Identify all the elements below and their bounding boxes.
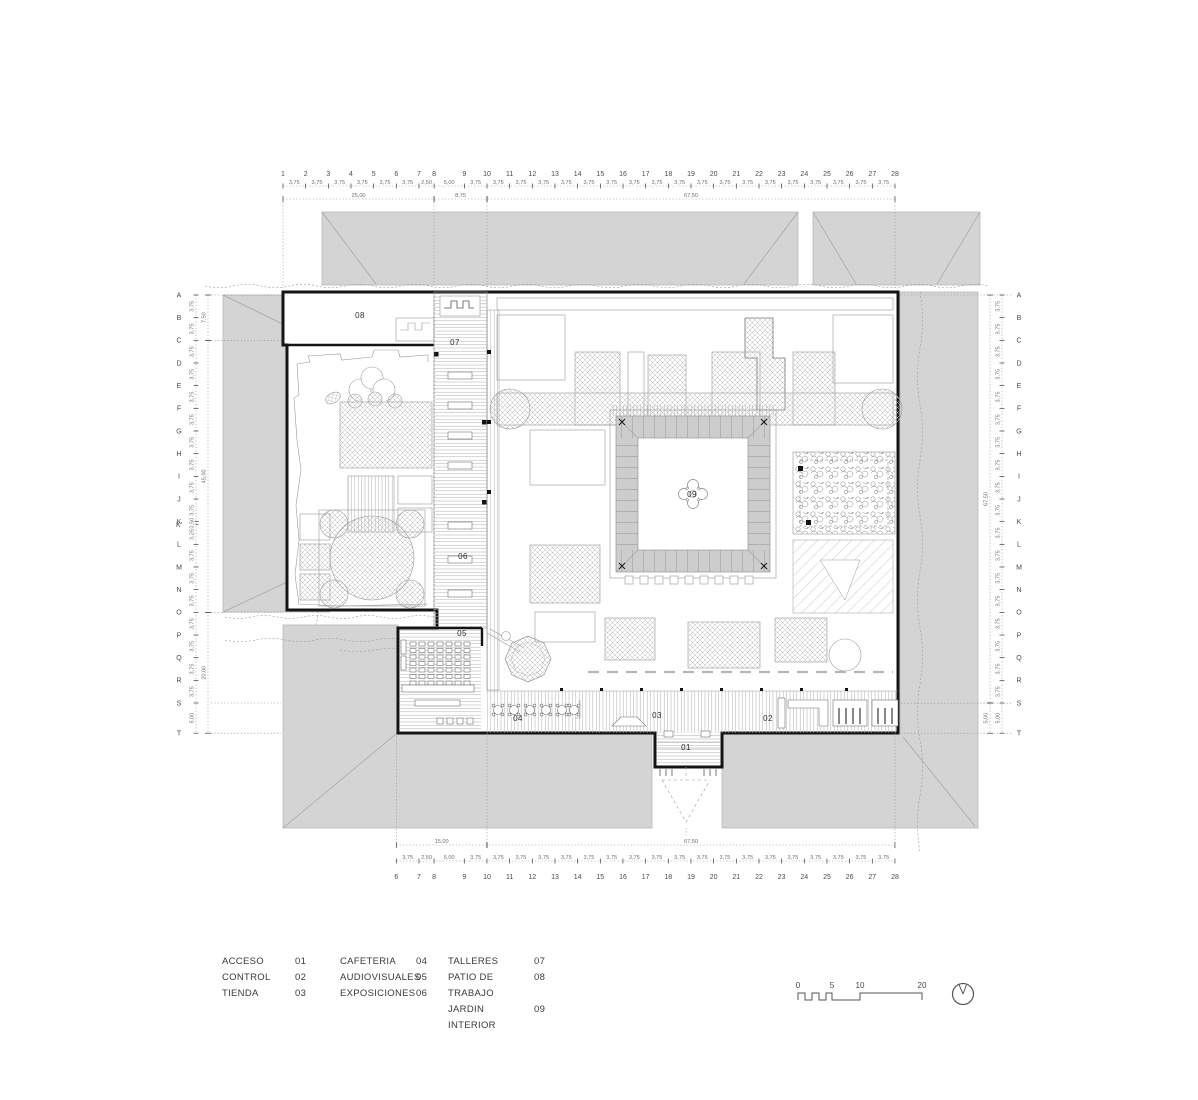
grid-letter: L <box>1017 542 1021 549</box>
grid-number: 18 <box>664 171 672 178</box>
dimension-value: 3,75 <box>629 855 640 861</box>
grid-number: 15 <box>596 874 604 881</box>
room-label-06: 06 <box>458 552 468 561</box>
legend-entry: EXPOSICIONES06 <box>340 986 427 1002</box>
grid-number: 16 <box>619 874 627 881</box>
dimension-value: 3,75 <box>190 664 196 675</box>
legend-label: CAFETERIA <box>340 954 416 970</box>
dimension-value: 0,50 <box>190 518 196 529</box>
grid-number: 24 <box>800 874 808 881</box>
dimension-value: 2,50 <box>421 855 432 861</box>
seat <box>428 649 434 653</box>
seat <box>437 642 443 646</box>
seat <box>446 662 452 666</box>
seat <box>455 668 461 672</box>
dimension-value: 3,75 <box>856 855 867 861</box>
seat <box>464 649 470 653</box>
grid-number: 13 <box>551 171 559 178</box>
seat <box>410 675 416 679</box>
dimension-value: 7,50 <box>202 312 208 323</box>
grid-letter: D <box>176 360 181 367</box>
dimension-value: 3,75 <box>674 855 685 861</box>
dimension-value: 3,75 <box>674 180 685 186</box>
dimension-value: 20,00 <box>202 666 208 680</box>
seat <box>428 668 434 672</box>
grid-letter: J <box>1017 496 1021 503</box>
seat <box>446 649 452 653</box>
dimension-value: 3,75 <box>652 180 663 186</box>
grid-number: 11 <box>506 171 513 178</box>
seat <box>464 675 470 679</box>
room-label-05: 05 <box>457 629 467 638</box>
grid-letter: K' <box>176 522 182 529</box>
dimension-value: 3,75 <box>996 414 1002 425</box>
seat <box>446 642 452 646</box>
legend-entry: CONTROL02 <box>222 970 306 986</box>
grid-number: 22 <box>755 171 763 178</box>
dimension-value: 5,00 <box>190 713 196 724</box>
grid-number: 8 <box>432 874 436 881</box>
grid-letter: T <box>1017 731 1022 738</box>
dimension-value: 3,75 <box>190 505 196 516</box>
seat <box>464 662 470 666</box>
dimension-value: 3,75 <box>996 596 1002 607</box>
dimension-value: 3,75 <box>538 180 549 186</box>
grid-number: 10 <box>483 171 491 178</box>
dimension-value: 3,75 <box>788 855 799 861</box>
grid-number: 14 <box>574 874 582 881</box>
seat <box>419 675 425 679</box>
seat <box>419 642 425 646</box>
legend-entry: AUDIOVISUALES05 <box>340 970 427 986</box>
grid-letter: L <box>177 542 181 549</box>
dimension-value: 3,75 <box>629 180 640 186</box>
dimension-value: 3,75 <box>402 180 413 186</box>
seat <box>446 668 452 672</box>
legend-number: 08 <box>534 970 545 1002</box>
dimension-value: 3,75 <box>788 180 799 186</box>
seat <box>410 655 416 659</box>
bottom-corridor <box>487 688 898 733</box>
grid-number: 19 <box>687 171 695 178</box>
legend-column-3: TALLERES07PATIO DE TRABAJO08JARDIN INTER… <box>448 954 545 1034</box>
grid-number: 8 <box>432 171 436 178</box>
grid-number: 9 <box>462 171 466 178</box>
legend-entry: TALLERES07 <box>448 954 545 970</box>
grid-number: 13 <box>551 874 559 881</box>
legend-entry: CAFETERIA04 <box>340 954 427 970</box>
dimension-value: 5,00 <box>984 713 990 724</box>
dimension-value: 8,75 <box>455 193 466 199</box>
grid-letter: K <box>1017 519 1022 526</box>
legend: ACCESO01CONTROL02TIENDA03CAFETERIA04AUDI… <box>0 954 1198 1014</box>
dimension-value: 3,75 <box>190 346 196 357</box>
dimension-value: 3,75 <box>833 855 844 861</box>
grid-number: 23 <box>778 171 786 178</box>
room-label-01: 01 <box>681 743 691 752</box>
grid-number: 24 <box>800 171 808 178</box>
dimension-value: 3,75 <box>190 686 196 697</box>
dimension-value: 3,75 <box>996 437 1002 448</box>
dimension-value: 5,00 <box>444 855 455 861</box>
legend-number: 01 <box>295 954 306 970</box>
grid-number: 11 <box>506 874 513 881</box>
grid-number: 5 <box>372 171 376 178</box>
legend-entry: ACCESO01 <box>222 954 306 970</box>
seat <box>437 662 443 666</box>
dimension-value: 3,75 <box>190 392 196 403</box>
dimension-value: 3,75 <box>996 324 1002 335</box>
seat <box>428 675 434 679</box>
dimension-value: 3,75 <box>190 414 196 425</box>
dimension-value: 3,75 <box>765 180 776 186</box>
seat <box>410 662 416 666</box>
grid-letter: B <box>1017 315 1022 322</box>
seat <box>410 642 416 646</box>
dimension-value: 3,75 <box>357 180 368 186</box>
room-label-08: 08 <box>355 311 365 320</box>
dimension-value: 67,50 <box>684 193 698 199</box>
dimension-value: 3,75 <box>190 641 196 652</box>
seat <box>446 655 452 659</box>
seat <box>437 655 443 659</box>
legend-label: EXPOSICIONES <box>340 986 416 1002</box>
seat <box>446 675 452 679</box>
grid-letter: R <box>1016 678 1021 685</box>
grid-number: 22 <box>755 874 763 881</box>
right-garden <box>793 452 895 613</box>
grid-ruler-bottom: 6789101112131415161718192021222324252627… <box>394 839 899 881</box>
room-label-09: 09 <box>687 490 697 499</box>
legend-number: 04 <box>416 954 427 970</box>
grid-ruler-right: ABCDEFGHIJKLMNOPQRST3,753,753,753,753,75… <box>984 292 1023 737</box>
grid-letter: S <box>177 700 182 707</box>
grid-number: 18 <box>664 874 672 881</box>
grid-ruler-left: ABCDEFGHIJKK'LMNOPQRST3,753,753,753,753,… <box>176 292 211 737</box>
seat <box>464 668 470 672</box>
seat <box>428 681 434 685</box>
legend-number: 03 <box>295 986 306 1002</box>
legend-label: AUDIOVISUALES <box>340 970 416 986</box>
room-label-03: 03 <box>652 711 662 720</box>
seat <box>455 655 461 659</box>
dimension-value: 3,75 <box>190 369 196 380</box>
dimension-value: 3,75 <box>493 180 504 186</box>
cafe-table <box>568 704 580 716</box>
dimension-value: 3,75 <box>190 301 196 312</box>
dimension-value: 3,75 <box>561 855 572 861</box>
dimension-value: 3,75 <box>493 855 504 861</box>
grid-number: 20 <box>710 171 718 178</box>
grid-number: 16 <box>619 171 627 178</box>
seat <box>419 655 425 659</box>
seat <box>455 662 461 666</box>
grid-letter: F <box>177 406 181 413</box>
dimension-value: 3,75 <box>561 180 572 186</box>
grid-number: 4 <box>349 171 353 178</box>
grid-number: 6 <box>394 874 398 881</box>
dimension-value: 5,00 <box>996 713 1002 724</box>
seat <box>455 681 461 685</box>
dimension-value: 3,75 <box>996 618 1002 629</box>
grid-letter: O <box>176 610 182 617</box>
dimension-value: 3,75 <box>190 482 196 493</box>
dimension-value: 15,00 <box>435 839 449 845</box>
legend-label: ACCESO <box>222 954 295 970</box>
grid-letter: P <box>177 632 182 639</box>
dimension-value: 3,75 <box>996 528 1002 539</box>
dimension-value: 3,75 <box>190 596 196 607</box>
grid-letter: B <box>177 315 182 322</box>
grid-number: 27 <box>868 171 876 178</box>
octagon-tower <box>505 636 551 682</box>
grid-number: 19 <box>687 874 695 881</box>
dimension-value: 3,75 <box>584 180 595 186</box>
dimension-value: 3,75 <box>765 855 776 861</box>
grid-letter: F <box>1017 406 1021 413</box>
dimension-value: 3,75 <box>996 573 1002 584</box>
cafe-table <box>524 704 536 716</box>
legend-number: 09 <box>534 1002 545 1034</box>
grid-number: 7 <box>417 171 421 178</box>
legend-number: 02 <box>295 970 306 986</box>
dimension-value: 3,75 <box>584 855 595 861</box>
cafe-table <box>540 704 552 716</box>
seat <box>455 649 461 653</box>
grid-number: 26 <box>846 874 854 881</box>
dimension-value: 3,75 <box>878 180 889 186</box>
dimension-value: 3,75 <box>470 180 481 186</box>
legend-label: TALLERES <box>448 954 534 970</box>
seat <box>419 649 425 653</box>
grid-letter: M <box>176 564 182 571</box>
legend-entry: TIENDA03 <box>222 986 306 1002</box>
dimension-value: 3,75 <box>516 180 527 186</box>
grid-letter: D <box>1016 360 1021 367</box>
dimension-value: 3,75 <box>742 855 753 861</box>
floor-plan-drawing: 1234567891011121314151617181920212223242… <box>0 0 1198 1100</box>
grid-letter: T <box>177 731 182 738</box>
grid-number: 14 <box>574 171 582 178</box>
grid-letter: H <box>176 451 181 458</box>
dimension-value: 3,75 <box>190 550 196 561</box>
grid-letter: J <box>177 496 181 503</box>
seat <box>437 675 443 679</box>
dimension-value: 3,75 <box>312 180 323 186</box>
grid-number: 25 <box>823 874 831 881</box>
dimension-value: 25,00 <box>352 193 366 199</box>
seat <box>410 681 416 685</box>
dimension-value: 3,75 <box>856 180 867 186</box>
grid-letter: I <box>178 474 180 481</box>
dimension-value: 3,75 <box>996 369 1002 380</box>
grid-number: 17 <box>642 874 650 881</box>
dimension-value: 3,75 <box>996 664 1002 675</box>
seat <box>464 655 470 659</box>
dimension-value: 3,75 <box>810 180 821 186</box>
dimension-value: 3,75 <box>606 180 617 186</box>
dimension-value: 3,75 <box>516 855 527 861</box>
grid-letter: G <box>176 428 181 435</box>
cafe-table <box>492 704 504 716</box>
grid-number: 12 <box>528 874 536 881</box>
seat <box>428 655 434 659</box>
dimension-value: 3,75 <box>996 392 1002 403</box>
grid-number: 7 <box>417 874 421 881</box>
dimension-value: 3,75 <box>720 180 731 186</box>
grid-letter: M <box>1016 564 1022 571</box>
dimension-value: 3,75 <box>470 855 481 861</box>
grid-letter: I <box>1018 474 1020 481</box>
courtyard-paving-squares <box>625 576 753 584</box>
room-label-07: 07 <box>450 338 460 347</box>
grid-number: 23 <box>778 874 786 881</box>
legend-number: 06 <box>416 986 427 1002</box>
dimension-value: 3,75 <box>996 346 1002 357</box>
dimension-value: 3,75 <box>334 180 345 186</box>
grid-letter: O <box>1016 610 1022 617</box>
seat <box>437 681 443 685</box>
seat <box>419 681 425 685</box>
room-label-04: 04 <box>513 714 523 723</box>
legend-label: JARDIN INTERIOR <box>448 1002 534 1034</box>
seat <box>464 642 470 646</box>
dimension-value: 45,00 <box>202 469 208 483</box>
grid-letter: S <box>1017 700 1022 707</box>
grid-number: 17 <box>642 171 650 178</box>
dimension-value: 3,75 <box>190 618 196 629</box>
dimension-value: 67,50 <box>984 492 990 506</box>
legend-column-2: CAFETERIA04AUDIOVISUALES05EXPOSICIONES06 <box>340 954 427 1002</box>
dimension-value: 3,75 <box>190 437 196 448</box>
grid-number: 6 <box>394 171 398 178</box>
seat <box>437 668 443 672</box>
legend-entry: JARDIN INTERIOR09 <box>448 1002 545 1034</box>
dimension-value: 3,75 <box>402 855 413 861</box>
dimension-value: 5,00 <box>444 180 455 186</box>
grid-number: 10 <box>483 874 491 881</box>
cafe-table <box>556 704 568 716</box>
grid-number: 15 <box>596 171 604 178</box>
seat <box>437 649 443 653</box>
grid-number: 9 <box>462 874 466 881</box>
grid-number: 28 <box>891 171 899 178</box>
dimension-value: 3,75 <box>996 482 1002 493</box>
legend-label: PATIO DE TRABAJO <box>448 970 534 1002</box>
dimension-value: 3,75 <box>190 573 196 584</box>
grid-number: 3 <box>326 171 330 178</box>
legend-column-1: ACCESO01CONTROL02TIENDA03 <box>222 954 306 1002</box>
dimension-value: 3,75 <box>190 324 196 335</box>
grid-letter: H <box>1016 451 1021 458</box>
dimension-value: 3,75 <box>833 180 844 186</box>
seat <box>428 642 434 646</box>
grid-number: 25 <box>823 171 831 178</box>
dimension-value: 3,75 <box>878 855 889 861</box>
grid-letter: P <box>1017 632 1022 639</box>
grid-letter: G <box>1016 428 1021 435</box>
dimension-value: 3,75 <box>538 855 549 861</box>
drawing-sheet: 1234567891011121314151617181920212223242… <box>0 0 1198 1100</box>
dimension-value: 3,75 <box>380 180 391 186</box>
dimension-value: 2,50 <box>421 180 432 186</box>
dimension-value: 3,75 <box>996 505 1002 516</box>
seat <box>455 675 461 679</box>
grid-number: 12 <box>528 171 536 178</box>
grid-letter: N <box>176 587 181 594</box>
legend-number: 07 <box>534 954 545 970</box>
dimension-value: 3,75 <box>289 180 300 186</box>
legend-entry: PATIO DE TRABAJO08 <box>448 970 545 1002</box>
seat <box>446 681 452 685</box>
seat <box>410 668 416 672</box>
seat <box>464 681 470 685</box>
dimension-value: 3,75 <box>652 855 663 861</box>
grid-number: 1 <box>281 171 285 178</box>
grid-letter: E <box>177 383 182 390</box>
grid-letter: E <box>1017 383 1022 390</box>
dimension-value: 3,75 <box>697 180 708 186</box>
grid-number: 2 <box>304 171 308 178</box>
dimension-value: 3,25 <box>190 529 196 540</box>
seat <box>419 662 425 666</box>
dimension-value: 3,75 <box>742 180 753 186</box>
dimension-value: 3,75 <box>606 855 617 861</box>
grid-letter: Q <box>1016 655 1022 662</box>
dimension-value: 3,75 <box>720 855 731 861</box>
grid-letter: A <box>177 292 182 299</box>
seat <box>455 642 461 646</box>
grid-letter: A <box>1017 292 1022 299</box>
grid-number: 26 <box>846 171 854 178</box>
grid-number: 20 <box>710 874 718 881</box>
seat <box>428 662 434 666</box>
legend-number: 05 <box>416 970 427 986</box>
dimension-value: 3,75 <box>996 460 1002 471</box>
seat <box>410 649 416 653</box>
grid-number: 27 <box>868 874 876 881</box>
dimension-value: 3,75 <box>190 460 196 471</box>
seat <box>419 668 425 672</box>
dimension-value: 3,75 <box>996 550 1002 561</box>
room-label-02: 02 <box>763 714 773 723</box>
dimension-value: 3,75 <box>810 855 821 861</box>
grid-number: 28 <box>891 874 899 881</box>
dimension-value: 3,75 <box>996 301 1002 312</box>
grid-letter: Q <box>176 655 182 662</box>
grid-letter: R <box>176 678 181 685</box>
dimension-value: 67,50 <box>684 839 698 845</box>
grid-letter: N <box>1016 587 1021 594</box>
dimension-value: 3,75 <box>996 641 1002 652</box>
grid-number: 21 <box>732 171 740 178</box>
grid-letter: C <box>1016 338 1021 345</box>
dimension-value: 3,75 <box>697 855 708 861</box>
legend-label: CONTROL <box>222 970 295 986</box>
grid-letter: C <box>176 338 181 345</box>
legend-label: TIENDA <box>222 986 295 1002</box>
grid-ruler-top: 1234567891011121314151617181920212223242… <box>281 171 899 202</box>
grid-number: 21 <box>732 874 740 881</box>
dimension-value: 3,75 <box>996 686 1002 697</box>
